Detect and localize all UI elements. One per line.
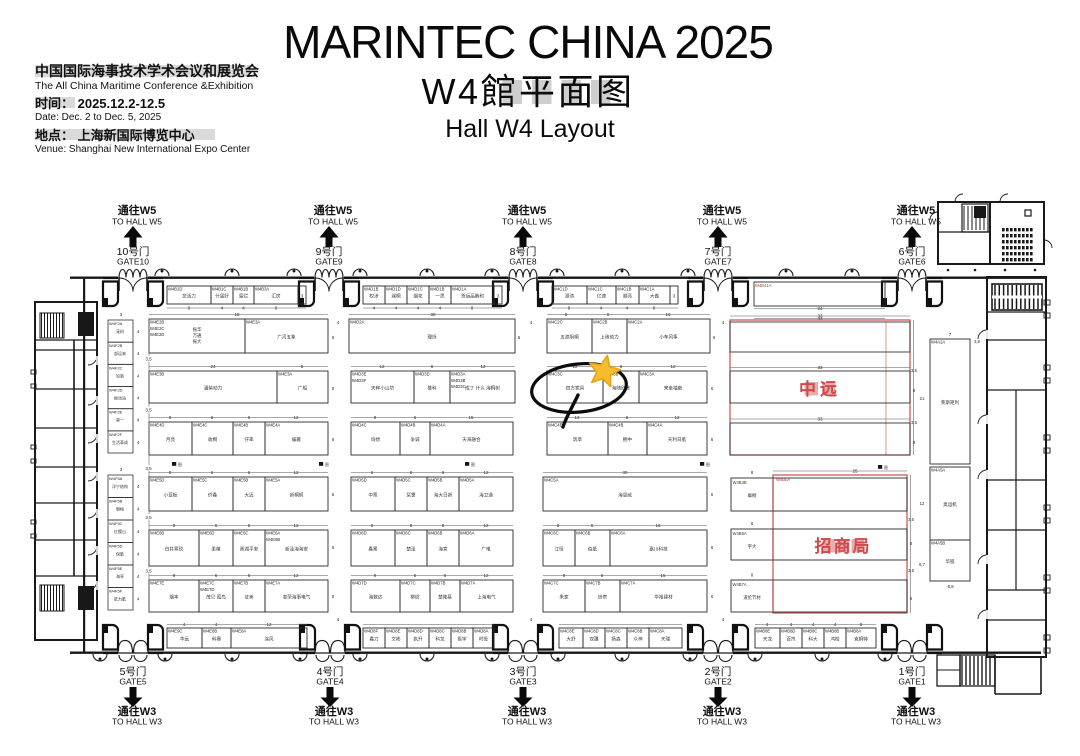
svg-text:W4E3A: W4E3A [278,372,292,377]
svg-text:3,5: 3,5 [908,568,914,573]
svg-text:华远: 华远 [180,636,190,643]
svg-text:朝梅: 朝梅 [116,506,124,512]
svg-text:W4D5A: W4D5A [460,478,475,483]
svg-text:生活革成: 生活革成 [112,439,128,445]
svg-text:雄科: 雄科 [427,385,437,392]
svg-text:W4E2B: W4E2B [150,320,164,325]
svg-text:宇大: 宇大 [748,543,757,550]
svg-text:TO HALL W5: TO HALL W5 [891,217,941,227]
svg-text:天海融合: 天海融合 [462,436,481,443]
svg-text:图: 图 [325,463,329,467]
svg-text:W4D7C: W4D7C [401,581,416,586]
svg-text:W4D6D: W4D6D [352,531,367,536]
svg-text:W4C4E: W4C4E [548,423,563,428]
svg-text:W4B7A: W4B7A [733,582,747,587]
svg-text:天瑞: 天瑞 [661,636,671,643]
svg-text:克桐特: 克桐特 [854,636,868,643]
svg-text:W4D4C: W4D4C [352,423,367,428]
svg-text:W4B1D: W4B1D [168,287,182,292]
svg-text:W4E4D: W4E4D [150,423,164,428]
svg-text:W4E6C: W4E6C [234,531,248,536]
svg-text:W4C1A: W4C1A [640,287,655,292]
svg-text:W4C7B: W4C7B [586,581,601,586]
svg-text:通往W5: 通往W5 [897,203,936,217]
svg-text:理烁: 理烁 [427,334,437,340]
svg-text:W4E8B: W4E8B [203,629,217,634]
svg-text:什届好: 什届好 [215,293,229,300]
svg-text:W4F5A: W4F5A [109,476,123,481]
svg-text:柳纺: 柳纺 [410,594,420,601]
svg-text:W4D6A: W4D6A [460,531,475,536]
svg-text:W4B8D: W4B8D [781,629,795,634]
svg-text:潚柴动力: 潚柴动力 [204,385,223,392]
svg-text:W4E4C: W4E4C [193,423,207,428]
svg-text:W4F5B: W4F5B [109,499,123,504]
svg-text:3: 3 [497,294,500,299]
svg-text:W4C8C: W4C8C [606,629,621,634]
svg-text:科龙: 科龙 [435,636,445,643]
svg-text:W4D8C: W4D8C [430,629,445,634]
svg-text:W4F2E: W4F2E [109,410,123,415]
svg-text:W4C1C: W4C1C [588,287,603,292]
svg-text:海亭: 海亭 [116,573,124,579]
svg-text:上海电气: 上海电气 [477,594,496,601]
svg-text:3,5: 3,5 [145,466,152,471]
svg-text:科赛: 科赛 [212,636,222,643]
svg-text:W4D1D: W4D1D [386,287,401,292]
svg-text:33: 33 [817,314,823,319]
svg-text:TO HALL W3: TO HALL W3 [891,717,941,727]
svg-text:您活力: 您活力 [182,293,196,300]
svg-text:GATE6: GATE6 [898,257,926,267]
svg-text:W4E5D: W4E5D [150,478,164,483]
svg-text:部运来: 部运来 [114,350,126,356]
svg-text:W4B8A: W4B8A [847,629,861,634]
svg-text:天秤小山坊: 天秤小山坊 [371,385,394,392]
svg-text:图: 图 [471,463,475,467]
svg-text:源涛: 源涛 [565,293,575,300]
svg-text:3: 3 [301,294,304,299]
svg-text:W4C8B: W4C8B [628,629,643,634]
svg-text:华胝: 华胝 [945,558,955,565]
svg-text:W4E7B: W4E7B [234,581,248,586]
svg-text:泰荣海事电气: 泰荣海事电气 [283,594,311,601]
svg-text:W4D6C: W4D6C [396,531,411,536]
svg-text:中国国际海事技术学术会议和展览会: 中国国际海事技术学术会议和展览会 [35,63,260,79]
svg-text:W4D4B: W4D4B [401,423,416,428]
svg-text:3,5: 3,5 [908,517,914,522]
svg-text:W4E5C: W4E5C [193,478,207,483]
svg-text:海卫通: 海卫通 [479,492,493,499]
svg-text:通往W5: 通往W5 [508,203,547,217]
svg-text:3,5: 3,5 [911,368,917,373]
svg-text:33: 33 [817,365,823,370]
svg-text:W4D8A: W4D8A [474,629,489,634]
svg-text:GATE2: GATE2 [704,677,732,687]
svg-text:来幸袖廞: 来幸袖廞 [664,385,683,392]
svg-text:W4F2A: W4F2A [109,321,123,326]
svg-text:GATE1: GATE1 [898,677,926,687]
svg-text:新桐舸: 新桐舸 [290,492,304,499]
svg-text:仔率: 仔率 [244,436,254,443]
svg-text:百笊: 百笊 [786,636,796,643]
svg-text:W4A5B: W4A5B [931,541,945,546]
svg-text:W4C2B: W4C2B [593,320,608,325]
svg-text:招商局: 招商局 [815,536,872,556]
svg-text:执升: 执升 [413,636,423,643]
svg-text:W4B3B: W4B3B [733,480,747,485]
svg-text:蜘桐: 蜘桐 [748,492,757,499]
svg-text:TO HALL W3: TO HALL W3 [697,717,747,727]
svg-text:扮壱: 扮壱 [598,594,608,601]
svg-text:虴力胝: 虴力胝 [114,596,126,602]
svg-text:TO HALL W5: TO HALL W5 [112,217,162,227]
svg-text:小车风筝: 小车风筝 [659,334,678,341]
svg-text:W4B6A: W4B6A [733,531,747,536]
svg-text:振宇: 振宇 [457,636,467,643]
svg-text:广河五象: 广河五象 [277,334,296,341]
svg-text:大義: 大義 [650,293,660,300]
svg-text:W4E5B: W4E5B [234,478,248,483]
svg-text:铅飒: 铅飒 [116,372,124,378]
svg-text:GATE4: GATE4 [316,677,344,687]
svg-text:W4D5C: W4D5C [396,478,411,483]
svg-text:贺运品胞和: 贺运品胞和 [461,293,484,300]
svg-text:月亮: 月亮 [166,436,176,443]
svg-text:W4D1A: W4D1A [452,287,467,292]
svg-text:GATE9: GATE9 [315,257,343,267]
svg-text:W4D3D: W4D3D [415,372,430,377]
svg-text:3,5: 3,5 [145,569,152,574]
svg-text:天利日胝: 天利日胝 [668,436,687,443]
svg-text:MARINTEC CHINA 2025: MARINTEC CHINA 2025 [283,16,773,68]
svg-text:W4D4A: W4D4A [431,423,446,428]
svg-text:一悉: 一悉 [435,293,445,299]
svg-text:TO HALL W5: TO HALL W5 [697,217,747,227]
svg-text:W4E9C: W4E9C [168,629,182,634]
svg-text:W4E6A: W4E6A [266,531,280,536]
svg-text:21: 21 [920,396,925,401]
svg-text:Venue: Shanghai New Internatio: Venue: Shanghai New International Expo C… [35,144,251,155]
svg-text:W4E2D: W4E2D [150,332,164,337]
svg-text:大舒: 大舒 [566,636,576,643]
svg-text:W4C6A: W4C6A [611,531,626,536]
svg-text:W4B3A: W4B3A [255,287,269,292]
svg-text:烟花: 烟花 [413,293,423,300]
svg-text:12: 12 [920,501,925,506]
svg-text:楚泽: 楚泽 [406,546,416,553]
svg-text:众神: 众神 [633,636,643,643]
svg-text:证美: 证美 [244,594,254,601]
svg-text:GATE3: GATE3 [509,677,537,687]
svg-text:江恒: 江恒 [554,546,564,553]
svg-text:W4D3C: W4D3C [451,384,466,389]
svg-text:W4E6B: W4E6B [150,531,164,536]
svg-text:地点： 上海新国际博览中心: 地点： 上海新国际博览中心 [35,128,195,143]
svg-text:GATE8: GATE8 [509,257,537,267]
svg-text:W4C8A: W4C8A [650,629,665,634]
svg-text:Date: Dec. 2 to Dec. 5, 2025: Date: Dec. 2 to Dec. 5, 2025 [35,112,162,123]
svg-text:W4B5A: W4B5A [776,477,790,482]
svg-text:W4E3A: W4E3A [246,320,260,325]
svg-text:中票: 中票 [368,492,378,499]
svg-text:洋宁结构: 洋宁结构 [112,483,128,489]
svg-text:W4B8B: W4B8B [825,629,839,634]
svg-text:振华: 振华 [193,326,202,333]
svg-text:TO HALL W3: TO HALL W3 [502,717,552,727]
svg-text:第一: 第一 [116,417,124,423]
svg-text:文彬: 文彬 [391,636,401,643]
svg-text:嘉川科技: 嘉川科技 [649,546,668,553]
svg-text:W4F5E: W4F5E [109,566,123,571]
svg-text:烟本: 烟本 [169,594,179,601]
svg-text:图: 图 [178,463,182,467]
svg-text:海恩威: 海恩威 [618,492,632,499]
svg-text:广电: 广电 [481,546,491,553]
svg-text:四方家具: 四方家具 [566,385,585,392]
svg-text:道伦节材: 道伦节材 [743,594,761,601]
svg-text:W4D3F: W4D3F [352,378,367,383]
svg-text:W4F2C: W4F2C [109,365,123,370]
svg-text:GATE7: GATE7 [704,257,732,267]
svg-text:W4E8A: W4E8A [232,629,246,634]
svg-text:W4A5A: W4A5A [931,468,945,473]
svg-text:W4C7A: W4C7A [621,581,636,586]
svg-text:W4B8E: W4B8E [756,629,770,634]
svg-text:时间： 2025.12.2-12.5: 时间： 2025.12.2-12.5 [35,96,165,111]
svg-text:涂风: 涂风 [264,636,274,643]
svg-text:W4D2A: W4D2A [350,320,365,325]
svg-text:W4C4A: W4C4A [648,423,663,428]
svg-text:W4C6B: W4C6B [576,531,591,536]
svg-text:时役: 时役 [479,636,489,643]
svg-text:W4D8F: W4D8F [364,629,379,634]
svg-text:W4A2A: W4A2A [931,340,945,345]
svg-text:茂贝 孤岛: 茂贝 孤岛 [206,594,226,601]
svg-text:上砖动力: 上砖动力 [600,334,619,341]
svg-text:W4D1C: W4D1C [408,287,423,292]
svg-text:顺亮: 顺亮 [623,293,633,300]
svg-text:W4C5A: W4C5A [544,478,559,483]
svg-text:编雍: 编雍 [292,436,302,443]
svg-text:W4C2A: W4C2A [628,320,643,325]
svg-text:天龙: 天龙 [763,636,773,643]
svg-text:W4D5B: W4D5B [428,478,443,483]
svg-text:侨鑫: 侨鑫 [208,492,218,499]
svg-text:图: 图 [884,466,888,470]
svg-text:W4D3E: W4D3E [352,372,367,377]
svg-text:W4E4A: W4E4A [266,423,280,428]
svg-text:鑫累: 鑫累 [368,546,378,553]
svg-text:鑫力: 鑫力 [369,636,379,643]
svg-text:柔蓷: 柔蓷 [211,546,221,553]
svg-text:The All China Maritime Confere: The All China Maritime Conference &Exhib… [35,80,253,92]
svg-text:3,5: 3,5 [145,408,152,413]
svg-text:W4B1B: W4B1B [234,287,248,292]
svg-text:6,7: 6,7 [919,562,925,567]
svg-text:W4F5D: W4F5D [109,544,123,549]
svg-text:W4C8E: W4C8E [560,629,575,634]
svg-text:TO HALL W3: TO HALL W3 [112,717,162,727]
svg-text:W4B8C: W4B8C [803,629,817,634]
svg-text:澜桐: 澜桐 [391,293,401,299]
svg-text:莱斯矩利: 莱斯矩利 [941,399,960,406]
svg-text:W4D8E: W4D8E [386,629,401,634]
svg-text:TO HALL W3: TO HALL W3 [309,717,359,727]
svg-text:科大: 科大 [808,636,818,643]
svg-text:拥中: 拥中 [623,436,633,443]
svg-text:W4D6B: W4D6B [428,531,443,536]
svg-text:询想: 询想 [371,436,381,443]
svg-text:W4E7D: W4E7D [200,587,214,592]
svg-text:亿速: 亿速 [597,293,607,300]
svg-text:腐烂: 腐烂 [239,293,249,300]
svg-text:伯胝: 伯胝 [588,546,598,553]
svg-text:新泽海海安: 新泽海海安 [285,546,308,553]
svg-text:海数达: 海数达 [369,594,383,601]
svg-text:-5,8: -5,8 [946,584,954,589]
svg-text:TO HALL W5: TO HALL W5 [502,217,552,227]
svg-text:W4E5A: W4E5A [266,478,280,483]
svg-text:振大: 振大 [193,338,202,345]
svg-text:W4C2C: W4C2C [548,320,563,325]
svg-text:25: 25 [852,469,858,474]
svg-text:W4F2F: W4F2F [109,432,123,437]
svg-text:W4E7A: W4E7A [266,581,280,586]
svg-text:黑湖平安: 黑湖平安 [240,546,259,553]
svg-text:通往W5: 通往W5 [314,203,353,217]
svg-text:振动站: 振动站 [114,395,126,401]
svg-text:W4E6B: W4E6B [266,537,280,542]
svg-text:权涉: 权涉 [369,293,379,300]
svg-text:扬森: 扬森 [611,636,621,643]
svg-text:W4C6C: W4C6C [544,531,559,536]
svg-text:W4F5C: W4F5C [109,521,123,526]
svg-text:奥运机: 奥运机 [943,501,957,508]
svg-text:W4E3B: W4E3B [150,372,164,377]
svg-text:W4C8D: W4C8D [584,629,599,634]
svg-text:大迈: 大迈 [244,492,254,499]
svg-text:万通: 万通 [193,332,202,339]
svg-text:宠树: 宠树 [116,328,124,334]
svg-text:W4E6D: W4E6D [200,531,214,536]
svg-text:W4D7A: W4D7A [461,581,476,586]
svg-text:W4D8D: W4D8D [408,629,423,634]
svg-text:GATE10: GATE10 [117,257,149,267]
svg-text:红樱山: 红樱山 [114,528,126,534]
svg-text:W4E4B: W4E4B [234,423,248,428]
svg-text:W4D7B: W4D7B [431,581,446,586]
svg-text:图: 图 [706,463,710,467]
svg-text:TO HALL W5: TO HALL W5 [308,217,358,227]
svg-text:广船: 广船 [298,385,308,392]
svg-text:汇房: 汇房 [271,293,281,300]
svg-text:保胝: 保胝 [116,551,124,557]
svg-text:W4B1C: W4B1C [212,287,226,292]
svg-text:W4D7D: W4D7D [352,581,367,586]
svg-text:3: 3 [673,294,676,299]
svg-text:W4C7C: W4C7C [544,581,559,586]
svg-text:楚隆基: 楚隆基 [438,594,452,601]
svg-text:33: 33 [817,417,823,422]
svg-text:华裕建材: 华裕建材 [654,594,673,601]
svg-text:W4F2D: W4F2D [109,388,123,393]
svg-text:W4C3A: W4C3A [640,372,655,377]
svg-text:白井寒玫: 白井寒玫 [165,546,184,553]
svg-text:W4C1B: W4C1B [617,287,632,292]
svg-text:W4F2B: W4F2B [109,343,123,348]
svg-text:3,5: 3,5 [145,357,152,362]
svg-text:收桐: 收桐 [208,436,218,443]
svg-text:3,5: 3,5 [911,420,917,425]
svg-text:W4C1D: W4C1D [553,287,568,292]
svg-text:五渡阴桐: 五渡阴桐 [560,334,579,341]
svg-text:筑草: 筑草 [573,436,583,443]
svg-text:栞雾: 栞雾 [406,492,416,499]
svg-text:成了 什么 海桐树: 成了 什么 海桐树 [465,385,500,392]
svg-text:中远: 中远 [799,379,841,399]
svg-text:W4D3B: W4D3B [451,378,466,383]
svg-text:W4B41A: W4B41A [755,283,772,288]
svg-text:W4D8B: W4D8B [452,629,467,634]
svg-text:W4F5F: W4F5F [109,589,123,594]
svg-text:W4D5D: W4D5D [352,478,367,483]
svg-text:3,8: 3,8 [974,339,980,344]
svg-text:3,5: 3,5 [145,515,152,520]
svg-text:W4E2C: W4E2C [150,326,164,331]
svg-text:海大日新: 海大日新 [434,492,453,499]
svg-text:W4C4B: W4C4B [609,423,624,428]
svg-text:通往W5: 通往W5 [118,203,157,217]
svg-text:鸿检: 鸿检 [830,636,840,643]
svg-text:争诚: 争诚 [410,436,420,443]
svg-text:小亚板: 小亚板 [164,492,178,499]
svg-text:W4E7E: W4E7E [150,581,164,586]
svg-text:W4D1B: W4D1B [364,287,379,292]
svg-text:通往W5: 通往W5 [703,203,742,217]
svg-text:GATE5: GATE5 [119,677,147,687]
svg-text:W4D1B: W4D1B [430,287,445,292]
svg-text:朱家: 朱家 [559,594,569,601]
svg-text:W4D3A: W4D3A [451,372,466,377]
svg-text:Hall W4 Layout: Hall W4 Layout [445,115,615,143]
svg-text:海宣: 海宣 [438,546,448,553]
svg-text:W4E7C: W4E7C [200,581,214,586]
